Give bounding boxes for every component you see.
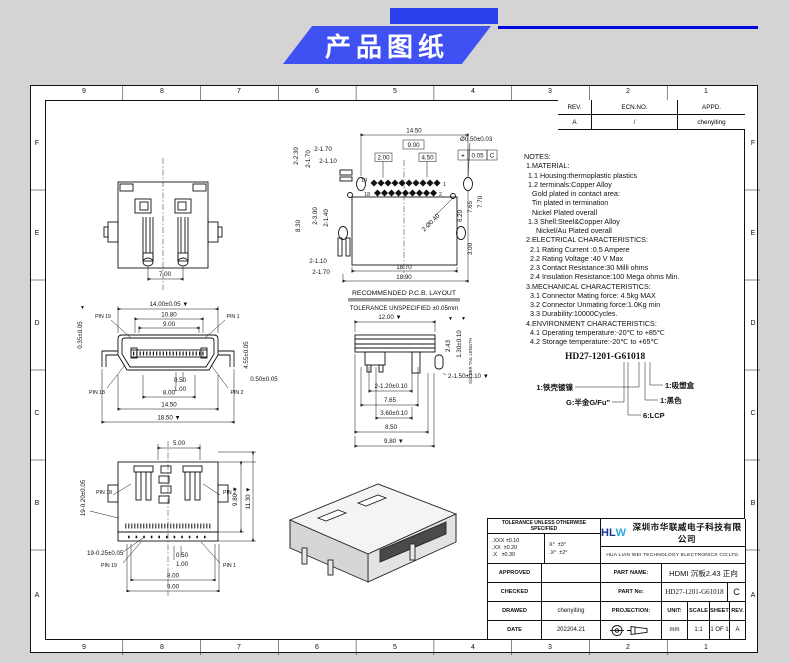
- dim-label: 2-2.30: [293, 147, 300, 165]
- zone-col: 9: [78, 88, 90, 95]
- dim-label: 0.50: [176, 552, 189, 559]
- isometric-view-drawing: [260, 462, 470, 622]
- part-name-label: PART NAME:: [601, 564, 662, 583]
- zone-row: C: [31, 410, 43, 417]
- dim-label: 1.30±0.10: [456, 330, 463, 358]
- unit-label: UNIT:: [662, 602, 688, 621]
- zone-col: 8: [156, 644, 168, 651]
- rev-header: REV.: [558, 100, 592, 115]
- zone-col: 3: [544, 88, 556, 95]
- zone-col: 1: [700, 88, 712, 95]
- zone-col: 4: [467, 644, 479, 651]
- date-value: 202204.21: [542, 621, 601, 640]
- dim-label: 10.80: [161, 312, 177, 319]
- rev-label: REV.: [730, 602, 746, 621]
- pin-number: 1: [443, 182, 446, 188]
- ecn-header: ECN.NO.: [592, 100, 678, 115]
- company-name-cn: 深圳市华联威电子科技有限公司: [629, 521, 745, 545]
- part-no-label: PART No:: [601, 583, 662, 602]
- pin-label: PIN 2: [231, 390, 244, 396]
- ang-xx: .X° ±2°: [549, 549, 567, 557]
- tolerance-title: TOLERANCE UNLESS OTHERWISE SPECIFIED: [488, 519, 601, 534]
- decoder-material: 6:LCP: [643, 411, 665, 420]
- pin-number: 2: [439, 192, 442, 198]
- side-view-drawing: 12.00 ▼ ▼ ▼ 2.43 1.30±0.10 SOLDER TAIL L…: [328, 303, 513, 455]
- dim-label: 8.30: [295, 219, 302, 232]
- projection-label: PROJECTION:: [601, 602, 662, 621]
- pin-label: PIN 1: [223, 563, 236, 569]
- dim-label: 9.00: [407, 142, 420, 149]
- approved-value: [542, 564, 601, 583]
- dim-label: 18.50 ▼: [157, 415, 180, 422]
- zone-row: D: [31, 320, 43, 327]
- pin-number: 19: [361, 178, 367, 184]
- zone-row: B: [747, 500, 759, 507]
- revision-table: REV. ECN.NO. APPD. A / chenyiting: [558, 100, 745, 130]
- dim-label: 7.65: [384, 397, 397, 404]
- decoder-plating: G:半金G/Fu″: [566, 397, 610, 407]
- rev-value-cell: A: [730, 621, 746, 640]
- dim-label: 2-1.70: [314, 146, 332, 153]
- front-view-drawing: 14.00±0.05 ▼ 10.80 9.00 PIN 19 PIN 1 PIN…: [73, 293, 293, 443]
- tol-xxx: .XXX ±0.10: [492, 538, 519, 545]
- zone-col: 7: [233, 88, 245, 95]
- dim-label: 4.55±0.05: [243, 341, 250, 369]
- dim-label: 2-1.10: [309, 258, 327, 265]
- zone-col: 1: [700, 644, 712, 651]
- dim-label: 1.00: [176, 561, 189, 568]
- dim-label: 19-0.25±0.05: [87, 550, 124, 557]
- fcf-datum: C: [490, 153, 495, 160]
- pin-label: PIN 1: [227, 314, 240, 320]
- ang-x: X° ±3°: [549, 541, 566, 549]
- dim-label: 1.00: [174, 386, 187, 393]
- part-code: HD27-1201-G61018: [565, 352, 645, 362]
- dim-label: 2.43: [445, 339, 452, 352]
- checked-value: [542, 583, 601, 602]
- dim-label: 3.60±0.10: [380, 410, 408, 417]
- critical-marker: ▼: [80, 305, 85, 311]
- zone-col: 6: [311, 644, 323, 651]
- dim-label: 2-1.20±0.10: [375, 383, 409, 390]
- dim-label: 7.70: [477, 195, 484, 208]
- notes-block: NOTES: 1.MATERIAL: 1.1 Housing:thermopla…: [524, 152, 752, 346]
- company-logo: HLW: [601, 527, 626, 539]
- tol-xx: .XX ±0.20: [492, 545, 517, 552]
- dim-label: 2-1.10: [319, 158, 337, 165]
- rev-letter-big: C: [728, 583, 746, 602]
- drawed-by: chenyiting: [542, 602, 601, 621]
- zone-col: 9: [78, 644, 90, 651]
- fcf-value: 0.05: [471, 153, 484, 160]
- scale-label: SCALE: [688, 602, 710, 621]
- zone-col: 2: [622, 88, 634, 95]
- zone-col: 6: [311, 88, 323, 95]
- critical-marker: ▼: [461, 316, 466, 322]
- unit-value: mm: [662, 621, 688, 640]
- fcf-symbol: ⌖: [461, 153, 465, 160]
- pin-label: PIN 18: [89, 390, 105, 396]
- drawed-label: DRAWED: [488, 602, 542, 621]
- dim-label: 2-1.70: [312, 269, 330, 276]
- zone-row: B: [31, 500, 43, 507]
- zone-row: A: [31, 592, 43, 599]
- dim-label: 19-0.20±0.05: [80, 479, 87, 516]
- dim-label: 14.00±0.05 ▼: [150, 301, 189, 308]
- date-label: DATE: [488, 621, 542, 640]
- sheet-label: SHEET: [710, 602, 730, 621]
- title-block: TOLERANCE UNLESS OTHERWISE SPECIFIED .XX…: [487, 518, 745, 640]
- tol-x: .X ±0.30: [492, 552, 515, 559]
- pin-label: PIN 19: [95, 314, 111, 320]
- decoder-color: 1:黑色: [660, 395, 682, 405]
- dim-label: 3.00: [467, 242, 474, 255]
- dim-label: 7.65: [467, 200, 474, 213]
- scale-value: 1:1: [688, 621, 710, 640]
- pin-number: 18: [364, 192, 370, 198]
- dim-label: 14.50: [406, 128, 422, 135]
- dim-label: 9.00: [167, 584, 180, 591]
- part-no-value: HD27-1201-G61018: [662, 583, 728, 602]
- part-code-decoder: HD27-1201-G61018 1:铁壳镀镍 G:半金G/Fu″ 1:吸塑盒 …: [515, 345, 750, 430]
- part-name-value: HDMI 沉板2.43 正向: [662, 564, 746, 583]
- dim-label: 2.00: [377, 155, 390, 162]
- dim-label: 9.80 ▼: [232, 486, 239, 506]
- hole-callout: Ø0.50±0.03: [460, 136, 493, 143]
- dim-label: 9.00: [163, 321, 176, 328]
- dim-label: 2-Ø0.40: [421, 212, 442, 233]
- dim-label: 18.90: [396, 274, 412, 281]
- dim-label: 4.50: [421, 155, 434, 162]
- rear-view-drawing: 7.00: [73, 155, 298, 300]
- decoder-shell: 1:铁壳镀镍: [536, 382, 573, 392]
- dim-label: 8.00: [167, 573, 180, 580]
- appd-header: APPD.: [678, 100, 745, 115]
- dim-label: 2-1.40: [323, 209, 330, 227]
- product-drawing-page: { "banner": {"title": "产品图纸"}, "frame": …: [0, 0, 790, 663]
- dim-label: 7.00: [159, 271, 172, 278]
- appd-value: chenyiting: [678, 115, 745, 130]
- pin-label: PIN 19: [101, 563, 117, 569]
- zone-row: F: [31, 140, 43, 147]
- bottom-view-drawing: 5.00 19-0.20±0.05 PIN 18 PIN 2 9.80 ▼ 11…: [73, 436, 273, 626]
- dim-label: 11.30 ▼: [245, 487, 252, 510]
- zone-col: 7: [233, 644, 245, 651]
- dim-label: 18.70: [396, 264, 412, 271]
- first-angle-projection-icon: [608, 623, 654, 638]
- zone-row: F: [747, 140, 759, 147]
- dim-label: 0.35±0.05: [77, 321, 84, 349]
- rev-value: A: [558, 115, 592, 130]
- zone-col: 5: [389, 88, 401, 95]
- checked-label: CHECKED: [488, 583, 542, 602]
- caption-underline: [348, 298, 460, 302]
- dim-label: 5.00: [173, 440, 186, 447]
- company-name-en: HUA LIAN WEI TECHNOLOGY ELECTRONICS CO;L…: [601, 547, 746, 564]
- zone-col: 2: [622, 644, 634, 651]
- zone-row: A: [747, 592, 759, 599]
- ecn-value: /: [592, 115, 678, 130]
- dim-label: 6.20: [457, 209, 464, 222]
- dim-label: 2-3.00: [312, 207, 319, 225]
- approved-label: APPROVED: [488, 564, 542, 583]
- dim-label: 12.00 ▼: [378, 314, 401, 321]
- critical-marker: ▼: [448, 316, 453, 322]
- zone-row: E: [31, 230, 43, 237]
- dim-label: 2-1.70: [305, 150, 312, 168]
- dim-label: 9.80 ▼: [384, 438, 404, 445]
- dim-label: 14.50: [161, 402, 177, 409]
- dim-label: 8.00: [163, 390, 176, 397]
- dim-label: 8.50: [385, 424, 398, 431]
- sheet-value: 1 OF 1: [710, 621, 730, 640]
- pcb-layout-drawing: 14.50 9.00 2.00 4.50 2-1.70 2-1.10 2-2.3…: [290, 126, 530, 316]
- zone-col: 5: [389, 644, 401, 651]
- dim-label: 0.50±0.05: [250, 376, 278, 383]
- dim-label: 2-1.50±0.10 ▼: [448, 373, 489, 380]
- decoder-packing: 1:吸塑盒: [665, 380, 695, 390]
- zone-col: 8: [156, 88, 168, 95]
- zone-col: 4: [467, 88, 479, 95]
- dim-label: 0.50: [174, 377, 187, 384]
- pin-label: PIN 18: [96, 490, 112, 496]
- zone-col: 3: [544, 644, 556, 651]
- projection-symbol: [601, 621, 662, 640]
- pcb-caption: RECOMMENDED P.C.B. LAYOUT: [352, 290, 456, 297]
